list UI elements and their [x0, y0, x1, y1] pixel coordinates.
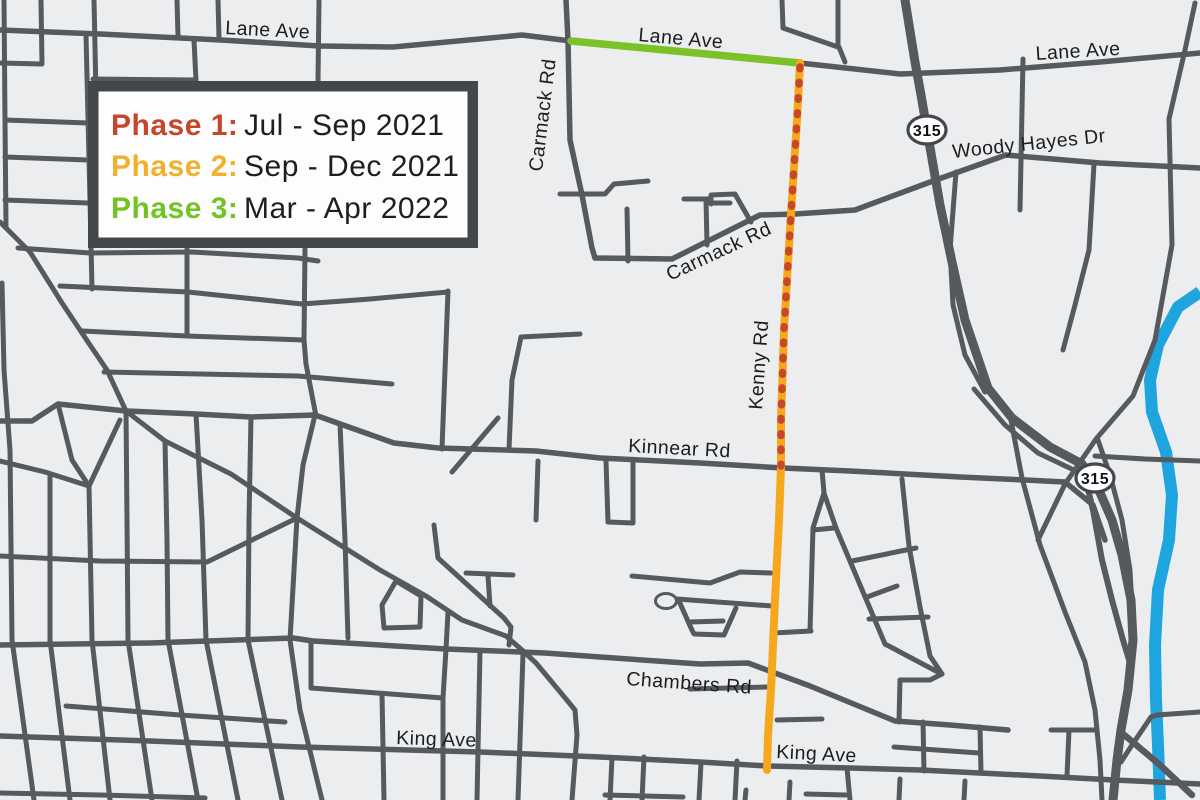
svg-text:Sep - Dec 2021: Sep - Dec 2021 — [244, 150, 459, 183]
svg-text:315: 315 — [1081, 471, 1109, 488]
svg-text:Mar - Apr 2022: Mar - Apr 2022 — [244, 192, 449, 225]
svg-text:Lane Ave: Lane Ave — [225, 17, 311, 43]
svg-text:King Ave: King Ave — [776, 741, 858, 767]
svg-text:Phase 3:: Phase 3: — [111, 192, 238, 225]
svg-text:Jul - Sep 2021: Jul - Sep 2021 — [244, 109, 444, 142]
svg-text:King Ave: King Ave — [396, 727, 477, 752]
svg-text:Phase 1:: Phase 1: — [111, 109, 238, 142]
svg-text:315: 315 — [913, 123, 941, 140]
svg-text:Phase 2:: Phase 2: — [111, 150, 238, 183]
